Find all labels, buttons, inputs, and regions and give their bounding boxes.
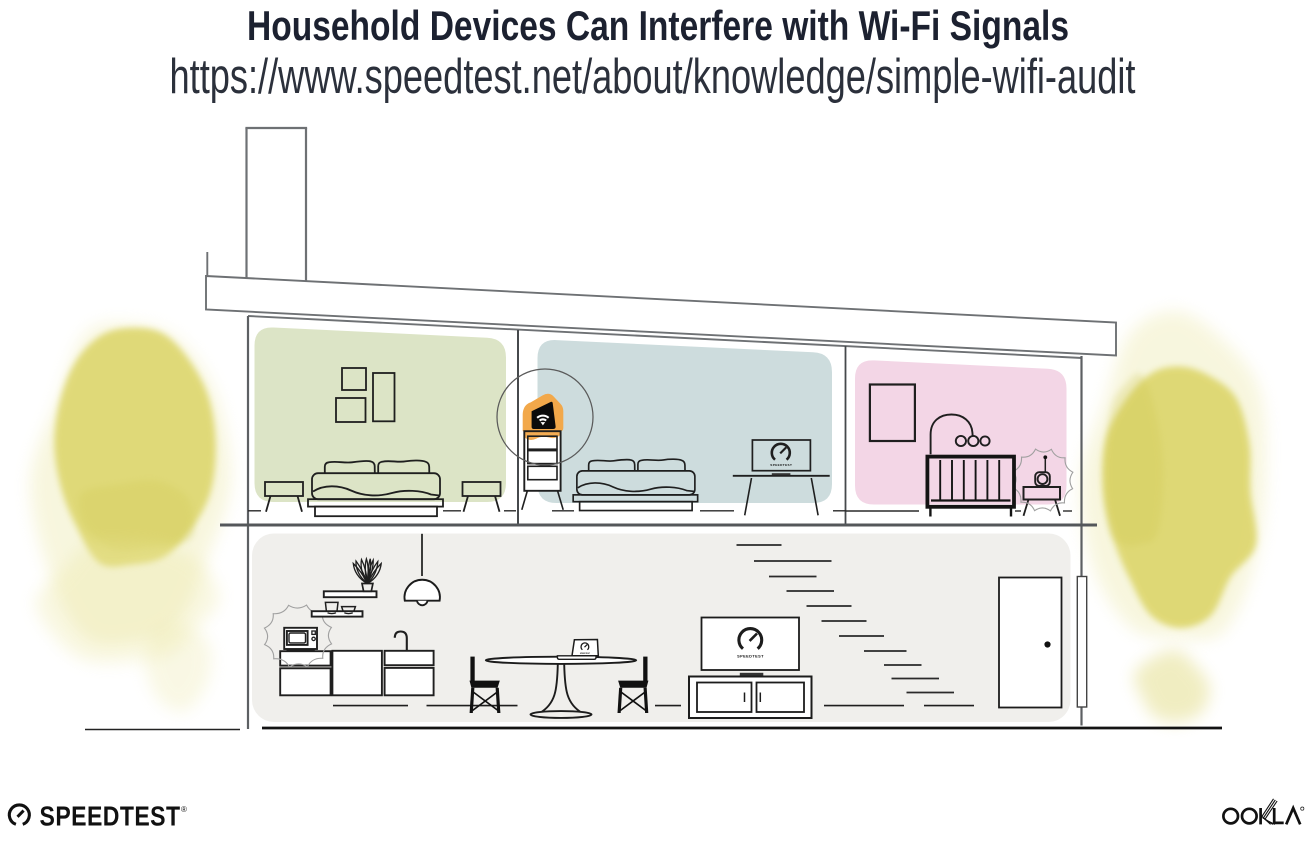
- svg-text:Household Devices Can Interfer: Household Devices Can Interfere with Wi-…: [247, 2, 1069, 49]
- svg-text:SPEEDTEST: SPEEDTEST: [770, 463, 792, 467]
- svg-text:SPEEDTEST: SPEEDTEST: [40, 801, 181, 832]
- svg-text:SPEEDTEST: SPEEDTEST: [580, 653, 591, 655]
- svg-text:SPEEDTEST: SPEEDTEST: [737, 654, 764, 659]
- svg-text:https://www.speedtest.net/abou: https://www.speedtest.net/about/knowledg…: [170, 50, 1136, 104]
- svg-text:®: ®: [181, 805, 187, 814]
